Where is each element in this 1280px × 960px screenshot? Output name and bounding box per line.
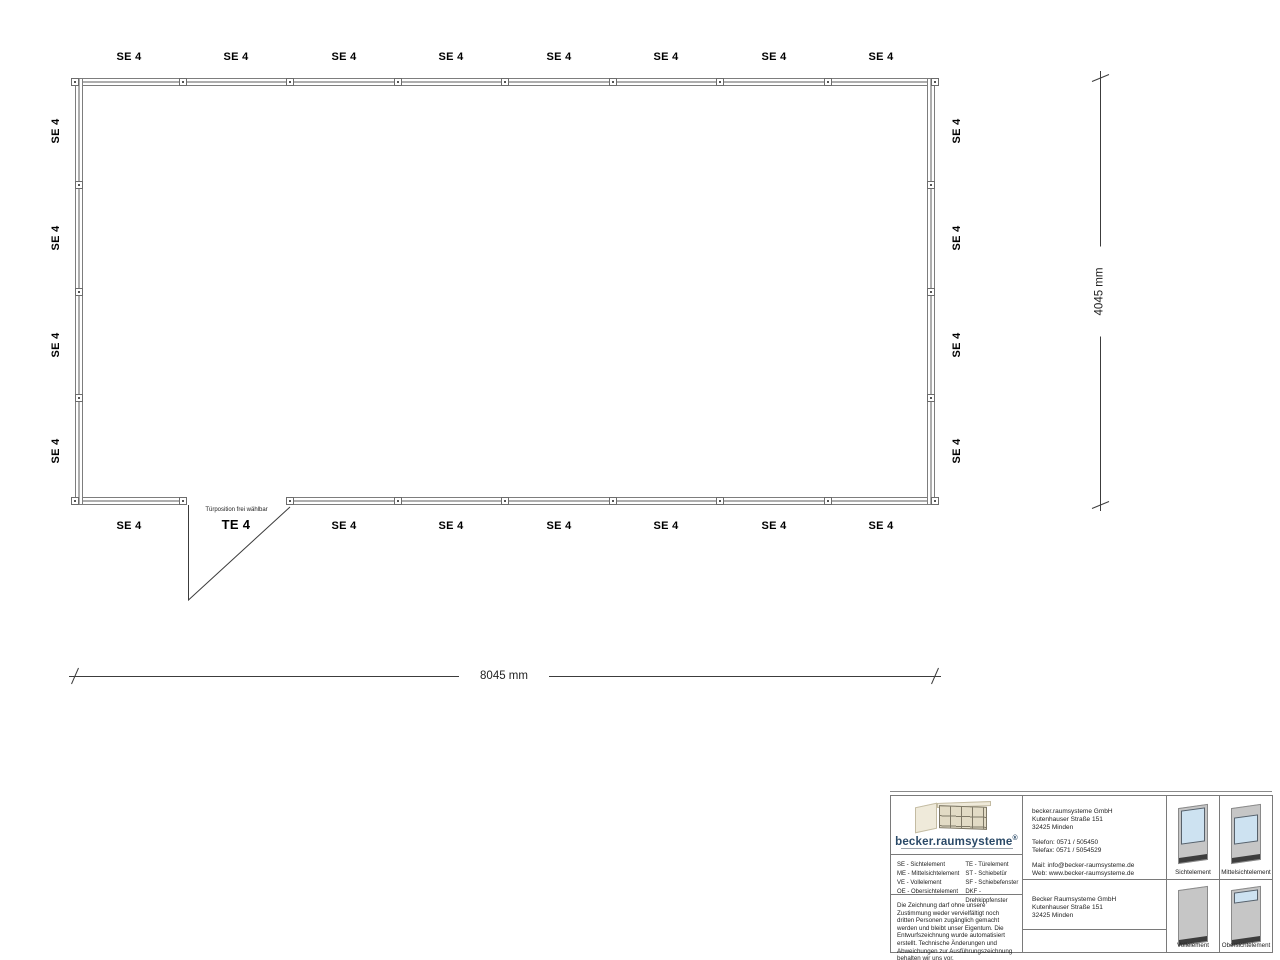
wall-post: [927, 181, 935, 189]
pictogram-mittelsichtelement: Mittelsichtelement: [1220, 796, 1272, 879]
company-address-primary: becker.raumsysteme GmbH Kutenhauser Stra…: [1023, 796, 1167, 879]
title-block: becker.raumsysteme® SE - Sichtelement ME…: [890, 795, 1273, 953]
company-fax: Telefax: 0571 / 5054529: [1032, 847, 1162, 855]
pictogram-label: Obersichtelement: [1220, 942, 1272, 950]
pictogram-vollelement: Vollelement: [1167, 879, 1220, 952]
wall-post: [179, 497, 187, 505]
wall-post: [501, 497, 509, 505]
element-label-bottom: SE 4: [516, 519, 602, 533]
dimension-height: 4045 mm: [1093, 247, 1108, 337]
element-label-top: SE 4: [731, 50, 817, 64]
empty-cell: [1023, 929, 1167, 952]
element-label-bottom: SE 4: [838, 519, 924, 533]
wall-post: [394, 78, 402, 86]
company-mail: Mail: info@becker-raumsysteme.de: [1032, 862, 1162, 870]
element-label-left: SE 4: [49, 302, 63, 388]
title-block-top-rule: [890, 791, 1272, 792]
element-label-top: SE 4: [86, 50, 172, 64]
panel-icon: [1178, 886, 1208, 946]
panel-icon: [1231, 804, 1261, 864]
wall-post: [394, 497, 402, 505]
element-label-left: SE 4: [49, 88, 63, 174]
pictogram-label: Sichtelement: [1167, 869, 1219, 877]
element-label-bottom: SE 4: [731, 519, 817, 533]
logo-cell: becker.raumsysteme®: [891, 796, 1023, 854]
legend-cell: SE - Sichtelement ME - Mittelsichtelemen…: [891, 854, 1023, 894]
wall-post: [286, 78, 294, 86]
wall-post: [609, 497, 617, 505]
wall-post: [927, 288, 935, 296]
legend-item: TE - Türelement: [965, 861, 1019, 870]
door-position-note: Türposition frei wählbar: [183, 507, 290, 513]
element-label-right: SE 4: [950, 302, 964, 388]
wall-post: [501, 78, 509, 86]
company-city: 32425 Minden: [1032, 824, 1162, 832]
company-street: Kutenhauser Straße 151: [1032, 816, 1162, 824]
company-address-secondary: Becker Raumsysteme GmbH Kutenhauser Stra…: [1023, 879, 1167, 929]
company-name: Becker Raumsysteme GmbH: [1032, 896, 1162, 904]
legend-item: ME - Mittelsichtelement: [897, 870, 965, 879]
wall-post: [716, 497, 724, 505]
dimension-tick: [72, 668, 79, 684]
logo-sketch-icon: [909, 802, 1005, 832]
disclaimer-cell: Die Zeichnung darf ohne unsere Zustimmun…: [891, 894, 1023, 952]
company-name: becker.raumsysteme GmbH: [1032, 808, 1162, 816]
element-label-door: TE 4: [193, 517, 279, 533]
element-label-bottom: SE 4: [301, 519, 387, 533]
company-phone: Telefon: 0571 / 505450: [1032, 839, 1162, 847]
logo-underline: [901, 848, 1013, 849]
element-label-left: SE 4: [49, 408, 63, 494]
panel-icon: [1178, 804, 1208, 864]
legend-item: VE - Vollelement: [897, 879, 965, 888]
wall-post: [609, 78, 617, 86]
dimension-tick: [1092, 502, 1109, 509]
element-label-left: SE 4: [49, 195, 63, 281]
dimension-tick: [932, 668, 939, 684]
element-label-right: SE 4: [950, 195, 964, 281]
panel-icon: [1231, 886, 1261, 946]
element-label-top: SE 4: [516, 50, 602, 64]
element-label-top: SE 4: [408, 50, 494, 64]
pictogram-label: Vollelement: [1167, 942, 1219, 950]
registered-mark: ®: [1013, 835, 1018, 842]
wall-bottom-left-of-door: [75, 497, 183, 505]
wall-post: [71, 497, 79, 505]
element-label-right: SE 4: [950, 408, 964, 494]
wall-post: [716, 78, 724, 86]
wall-post: [931, 497, 939, 505]
legend-item: SE - Sichtelement: [897, 861, 965, 870]
wall-post: [75, 288, 83, 296]
company-street: Kutenhauser Straße 151: [1032, 904, 1162, 912]
dimension-width: 8045 mm: [459, 669, 549, 684]
element-label-right: SE 4: [950, 88, 964, 174]
element-label-bottom: SE 4: [86, 519, 172, 533]
drawing-page: 8045 mm 4045 mm SE 4 SE 4 SE 4 SE 4 SE 4…: [0, 0, 1280, 960]
element-label-top: SE 4: [193, 50, 279, 64]
wall-post: [71, 78, 79, 86]
element-label-top: SE 4: [838, 50, 924, 64]
wall-post: [179, 78, 187, 86]
wall-post: [824, 497, 832, 505]
wall-post: [75, 181, 83, 189]
legend-item: ST - Schiebetür: [965, 870, 1019, 879]
wall-post: [931, 78, 939, 86]
pictogram-sichtelement: Sichtelement: [1167, 796, 1220, 879]
element-label-top: SE 4: [623, 50, 709, 64]
legend-item: SF - Schiebefenster: [965, 879, 1019, 888]
logo-wordmark: becker.raumsysteme®: [891, 835, 1022, 846]
element-label-bottom: SE 4: [623, 519, 709, 533]
pictogram-obersichtelement: Obersichtelement: [1220, 879, 1272, 952]
element-label-top: SE 4: [301, 50, 387, 64]
company-city: 32425 Minden: [1032, 912, 1162, 920]
wall-post: [927, 394, 935, 402]
element-label-bottom: SE 4: [408, 519, 494, 533]
wall-post: [824, 78, 832, 86]
wall-post: [75, 394, 83, 402]
company-web: Web: www.becker-raumsysteme.de: [1032, 870, 1162, 878]
dimension-tick: [1092, 75, 1109, 82]
pictogram-label: Mittelsichtelement: [1220, 869, 1272, 877]
wall-post: [286, 497, 294, 505]
disclaimer-text: Die Zeichnung darf ohne unsere Zustimmun…: [891, 895, 1022, 960]
